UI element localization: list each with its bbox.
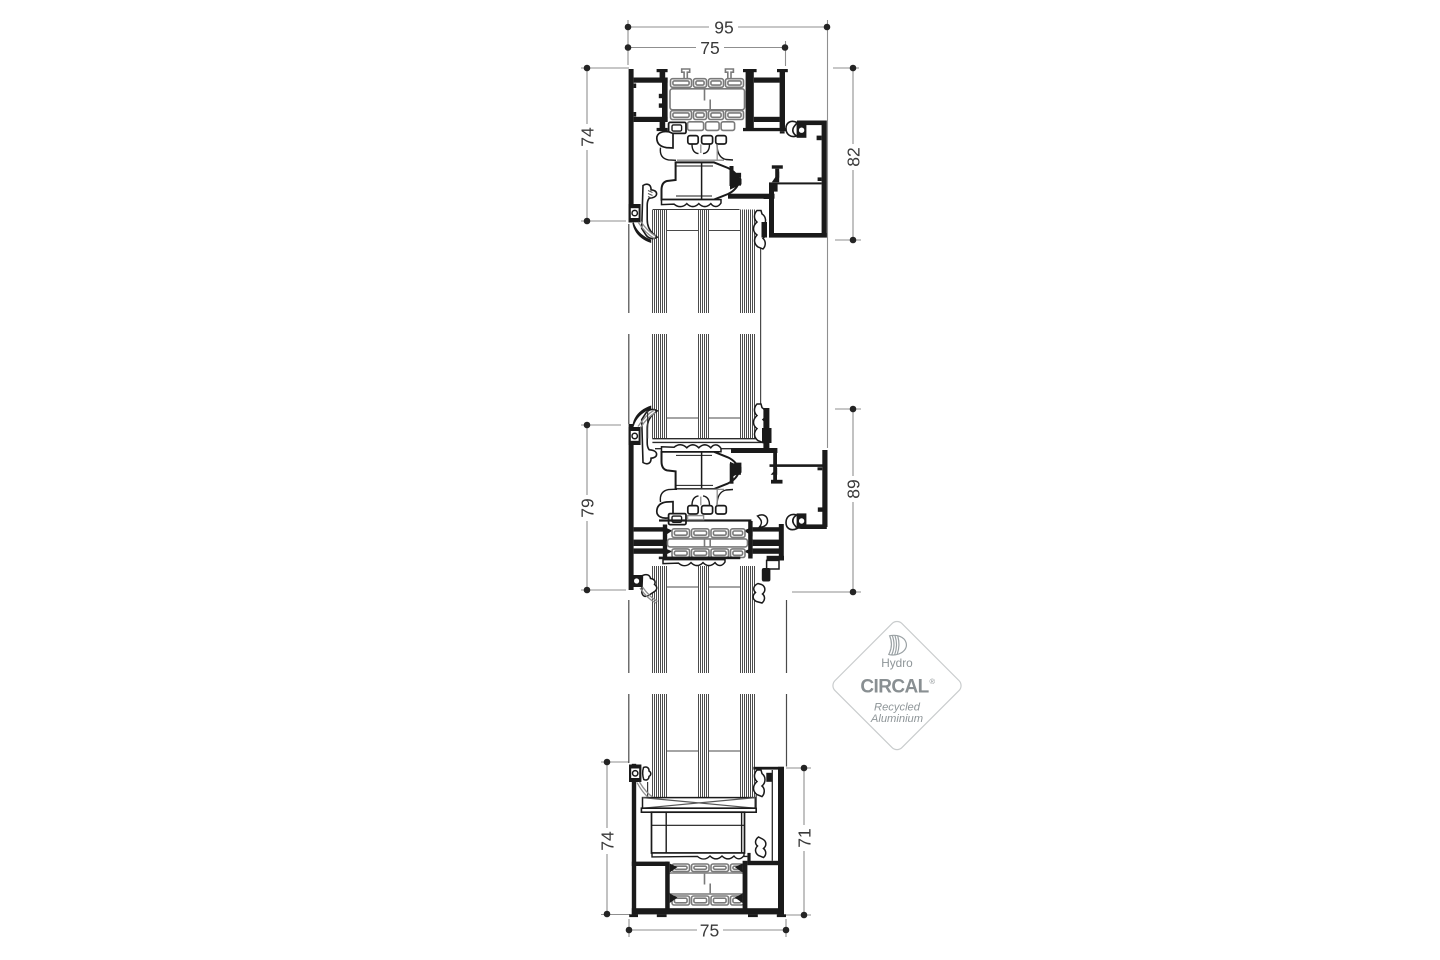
svg-text:®: ® xyxy=(930,677,936,686)
svg-text:82: 82 xyxy=(843,147,863,166)
svg-text:CIRCAL: CIRCAL xyxy=(860,676,929,697)
svg-text:71: 71 xyxy=(794,828,814,847)
svg-text:89: 89 xyxy=(843,479,863,498)
svg-text:95: 95 xyxy=(714,17,733,37)
svg-text:75: 75 xyxy=(700,38,719,58)
svg-text:Recycled: Recycled xyxy=(874,702,921,714)
svg-text:79: 79 xyxy=(577,498,597,517)
svg-text:74: 74 xyxy=(577,127,597,147)
svg-text:Aluminium: Aluminium xyxy=(870,713,923,725)
svg-text:74: 74 xyxy=(597,831,617,851)
svg-text:75: 75 xyxy=(700,920,719,940)
svg-text:Hydro: Hydro xyxy=(881,656,913,670)
